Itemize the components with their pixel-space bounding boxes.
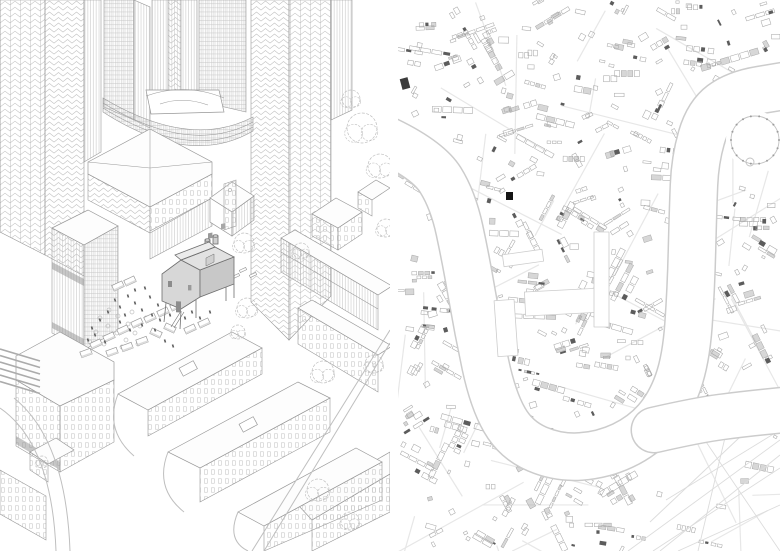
site-marker-square bbox=[506, 192, 513, 200]
left-midrise-blocks bbox=[0, 210, 118, 540]
figure-ground-map-panel bbox=[398, 0, 780, 551]
drawing-sheet bbox=[0, 0, 780, 551]
isometric-drawing-panel bbox=[0, 0, 390, 551]
isometric-drawing bbox=[0, 0, 390, 551]
figure-ground-map bbox=[398, 0, 780, 551]
church-buildings bbox=[210, 180, 254, 236]
